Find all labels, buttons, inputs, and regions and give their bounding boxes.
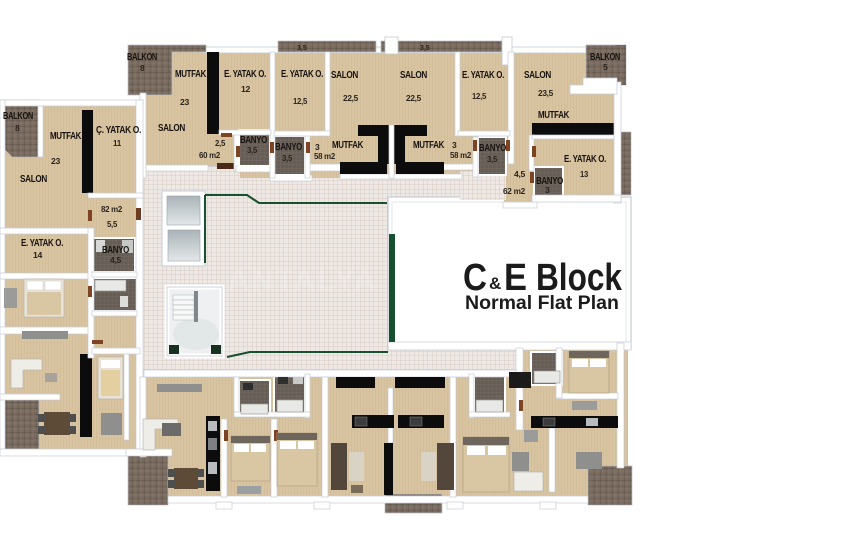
svg-text:SALON: SALON [158,123,185,134]
svg-text:MUTFAK: MUTFAK [538,110,570,121]
svg-text:E. YATAK O.: E. YATAK O. [564,154,606,165]
svg-text:E. YATAK O.: E. YATAK O. [224,69,266,80]
svg-text:MUTFAK: MUTFAK [175,69,207,80]
svg-text:4,5: 4,5 [514,169,526,179]
svg-text:SALON: SALON [331,70,358,81]
svg-text:2,5: 2,5 [215,138,226,148]
svg-text:3: 3 [545,185,550,195]
svg-text:BANYO: BANYO [536,176,563,187]
svg-text:3,5: 3,5 [297,45,307,52]
svg-text:BALKON: BALKON [3,111,33,122]
svg-text:4,5: 4,5 [110,255,122,265]
svg-text:Normal Flat Plan: Normal Flat Plan [465,292,619,314]
svg-text:23,5: 23,5 [538,88,554,98]
svg-text:BALKON: BALKON [127,52,157,63]
svg-text:12: 12 [241,84,251,94]
svg-text:SALON: SALON [20,174,47,185]
svg-text:E. YATAK O.: E. YATAK O. [462,70,504,81]
svg-text:5,5: 5,5 [107,219,118,229]
svg-text:58 m2: 58 m2 [314,151,336,161]
svg-text:3,5: 3,5 [487,154,498,164]
svg-text:SALON: SALON [400,70,427,81]
svg-text:MUTFAK: MUTFAK [413,140,445,151]
svg-text:22,5: 22,5 [343,93,359,103]
svg-text:12,5: 12,5 [293,96,308,106]
svg-text:12,5: 12,5 [472,91,487,101]
svg-text:E. YATAK O.: E. YATAK O. [21,238,63,249]
svg-text:BANYO: BANYO [275,142,302,153]
svg-text:3,5: 3,5 [247,145,258,155]
svg-text:58 m2: 58 m2 [450,150,472,160]
svg-text:3,5: 3,5 [420,45,430,52]
svg-text:MUTFAK: MUTFAK [50,131,82,142]
svg-text:8: 8 [15,123,20,133]
svg-text:23: 23 [51,156,61,166]
svg-text:MUTFAK: MUTFAK [332,140,364,151]
svg-text:ANTALYA: ANTALYA [228,264,378,297]
svg-text:&: & [489,274,501,293]
svg-text:5: 5 [603,62,608,72]
svg-text:82 m2: 82 m2 [101,204,123,214]
svg-text:E. YATAK O.: E. YATAK O. [281,69,323,80]
svg-text:11: 11 [113,138,122,148]
svg-text:13: 13 [580,169,589,179]
svg-text:14: 14 [33,250,43,260]
svg-text:Ç. YATAK O.: Ç. YATAK O. [96,125,142,136]
svg-text:22,5: 22,5 [406,93,422,103]
svg-text:62 m2: 62 m2 [503,186,526,196]
svg-text:3: 3 [452,140,457,150]
svg-text:3,5: 3,5 [282,153,293,163]
svg-text:60 m2: 60 m2 [199,150,221,160]
svg-text:BANYO: BANYO [479,143,506,154]
svg-text:8: 8 [140,63,145,73]
svg-text:SALON: SALON [524,70,551,81]
svg-text:23: 23 [180,97,190,107]
